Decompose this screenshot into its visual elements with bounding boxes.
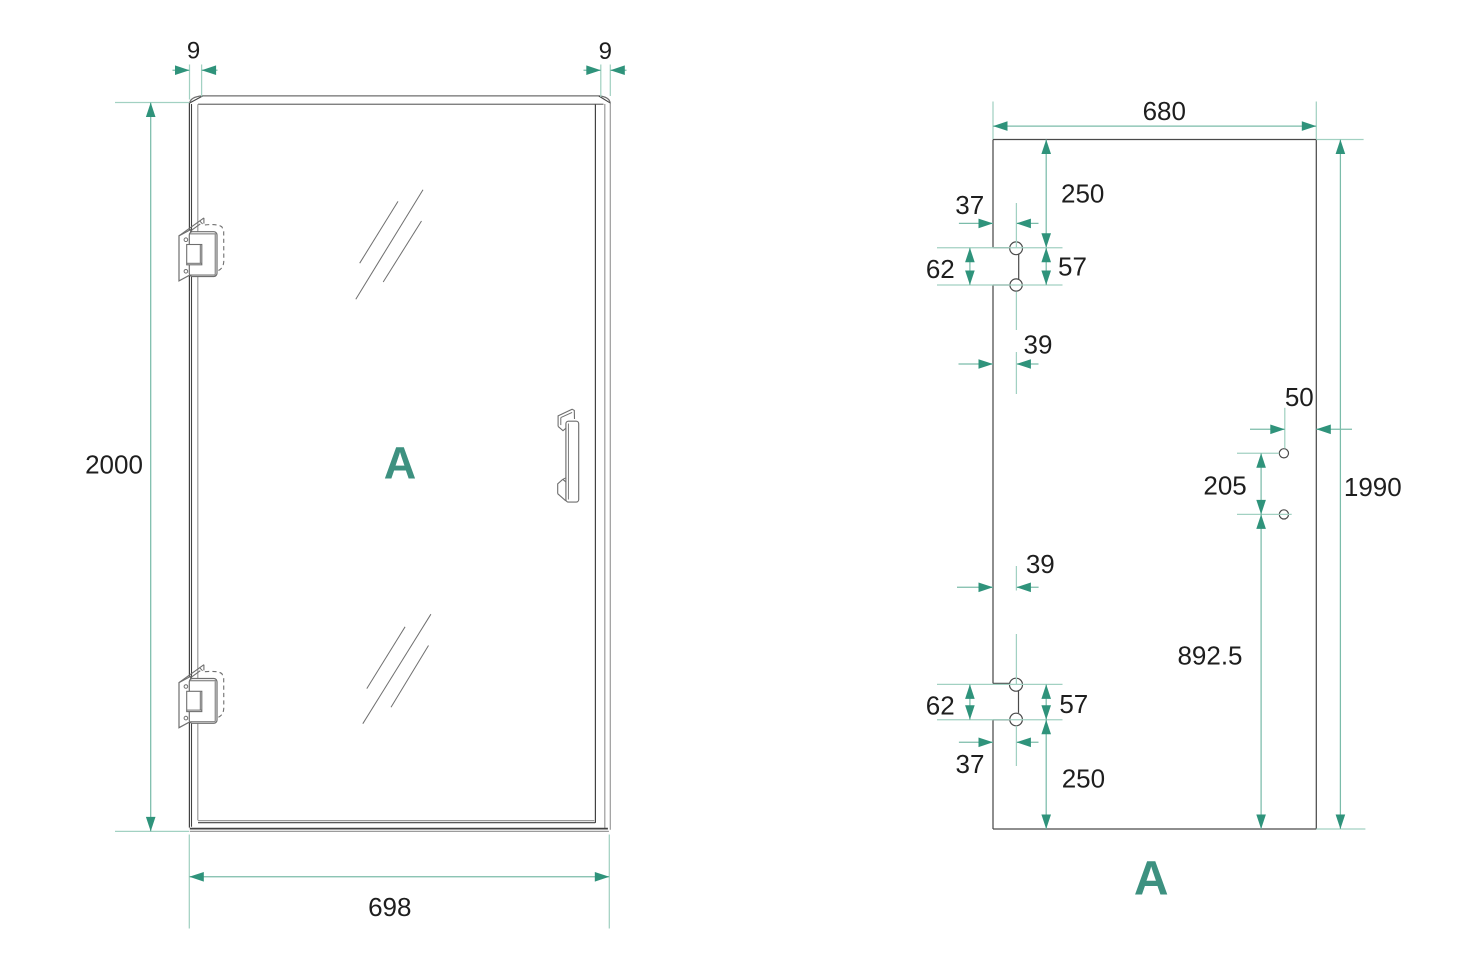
svg-text:680: 680	[1143, 96, 1186, 126]
svg-text:9: 9	[599, 38, 612, 65]
svg-text:250: 250	[1061, 179, 1104, 209]
svg-text:57: 57	[1058, 252, 1087, 282]
svg-text:892.5: 892.5	[1177, 641, 1242, 671]
svg-text:57: 57	[1059, 689, 1088, 719]
svg-text:698: 698	[368, 892, 411, 922]
svg-text:37: 37	[955, 190, 984, 220]
svg-text:39: 39	[1024, 330, 1053, 360]
svg-text:2000: 2000	[85, 449, 143, 479]
svg-text:250: 250	[1062, 764, 1105, 794]
svg-text:A: A	[1134, 852, 1169, 905]
svg-text:9: 9	[187, 38, 200, 65]
svg-text:62: 62	[926, 690, 955, 720]
svg-text:62: 62	[926, 254, 955, 284]
svg-text:37: 37	[956, 749, 985, 779]
svg-text:1990: 1990	[1344, 472, 1402, 502]
svg-text:205: 205	[1203, 470, 1246, 500]
svg-text:A: A	[384, 438, 417, 489]
svg-text:39: 39	[1026, 549, 1055, 579]
svg-text:50: 50	[1285, 382, 1314, 412]
